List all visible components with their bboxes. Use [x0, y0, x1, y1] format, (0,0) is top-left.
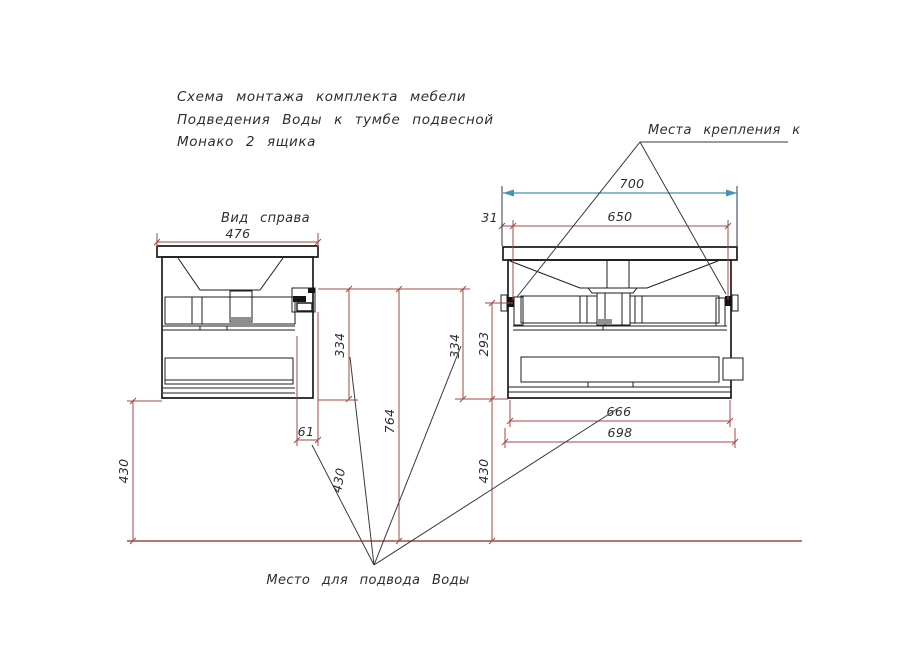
front-drain-shade [598, 319, 612, 324]
dimension-430-right: 430 [476, 399, 495, 544]
side-bracket-fill [293, 296, 306, 302]
side-bottom-boards [163, 388, 295, 393]
title-line-3: Монако 2 ящика [177, 134, 316, 150]
drawing-canvas: Схема монтажа комплекта мебели Подведени… [0, 0, 900, 661]
mounting-scheme-drawing: Схема монтажа комплекта мебели Подведени… [0, 0, 900, 661]
dim-label-334-front: 334 [447, 333, 462, 358]
dim-label-430-inlet: 430 [329, 467, 348, 494]
side-sink-basin [178, 258, 283, 290]
dimension-666: 666 [507, 400, 733, 427]
side-view-label: Вид справа [221, 211, 310, 226]
dim-label-293: 293 [476, 331, 491, 356]
mounting-leader: Места крепления к [517, 123, 801, 297]
side-bracket-plate [297, 303, 312, 311]
dim-label-700: 700 [619, 176, 644, 191]
dim-label-430-right: 430 [476, 458, 491, 483]
front-drawer-slides [513, 326, 727, 330]
front-lower-drawer [521, 357, 719, 382]
side-countertop [157, 246, 318, 257]
front-side-box-mask [723, 358, 743, 380]
side-cabinet-outline [162, 257, 313, 398]
mounting-note: Места крепления к [648, 123, 801, 138]
side-drain-shade [231, 317, 251, 322]
dimension-430-left: 430 [116, 398, 162, 544]
dim-label-698: 698 [607, 425, 632, 440]
dim-label-61: 61 [298, 424, 315, 439]
side-drawer-slides [163, 326, 295, 330]
dimension-61: 61 [294, 312, 321, 446]
dimension-698: 698 [502, 425, 738, 448]
dim-label-476: 476 [225, 226, 250, 241]
front-countertop [503, 247, 737, 260]
dim-label-650: 650 [607, 209, 632, 224]
dimension-650: 650 [510, 209, 731, 300]
dim-label-764: 764 [382, 408, 397, 433]
dimension-764: 764 [382, 286, 402, 544]
front-view [501, 247, 743, 398]
front-bottom-boards [508, 382, 731, 392]
dimension-476: 476 [154, 226, 321, 247]
dimension-31: 31 [481, 210, 513, 229]
side-bracket-tab [308, 288, 315, 293]
water-note: Место для подвода Воды [266, 573, 469, 588]
dim-label-666: 666 [606, 404, 631, 419]
title-block: Схема монтажа комплекта мебели Подведени… [177, 89, 494, 150]
title-line-2: Подведения Воды к тумбе подвесной [177, 112, 494, 128]
title-line-1: Схема монтажа комплекта мебели [177, 89, 466, 105]
front-cabinet-outline [508, 260, 731, 398]
dim-label-430-left: 430 [116, 458, 131, 483]
dim-label-334-side: 334 [332, 332, 347, 357]
side-lower-drawer [165, 358, 293, 384]
dim-label-31: 31 [481, 210, 498, 225]
